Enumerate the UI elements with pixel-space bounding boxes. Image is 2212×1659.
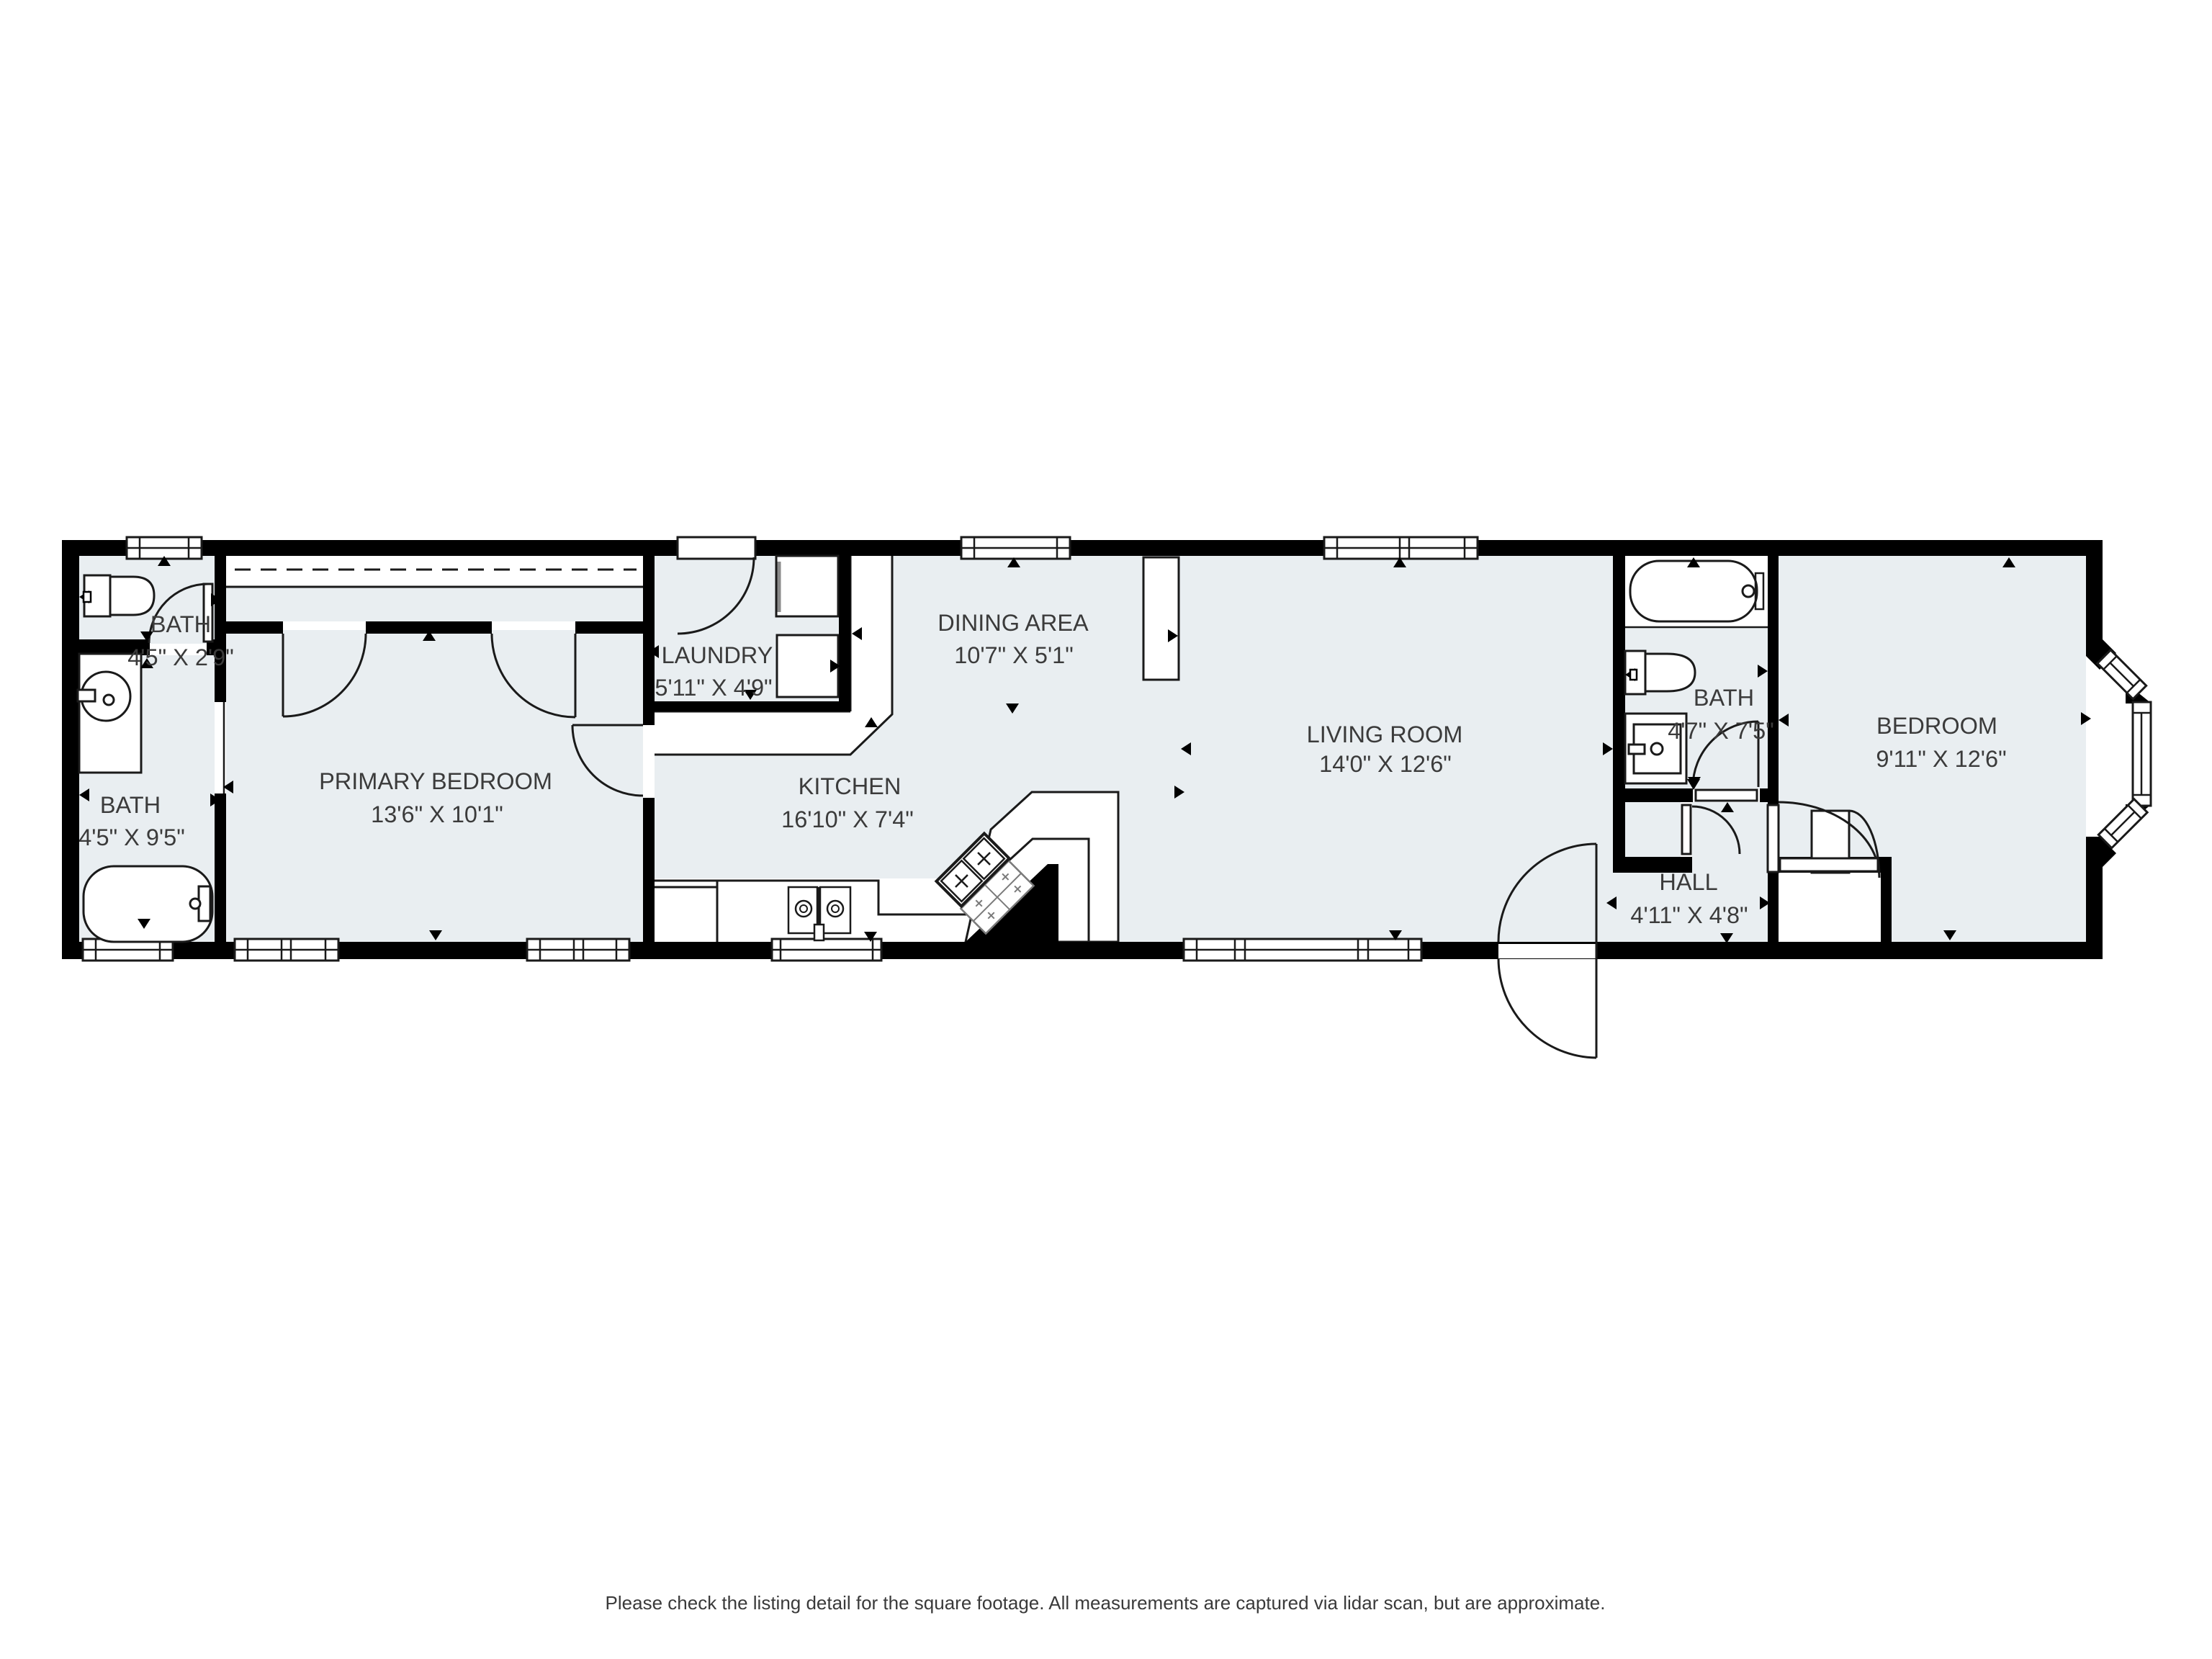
svg-text:HALL: HALL [1659, 869, 1717, 895]
svg-text:BATH: BATH [1694, 685, 1754, 711]
svg-text:16'10" X 7'4": 16'10" X 7'4" [781, 806, 914, 832]
svg-text:4'5" X 2'9": 4'5" X 2'9" [127, 644, 234, 670]
svg-text:DINING AREA: DINING AREA [938, 610, 1089, 636]
svg-text:LIVING ROOM: LIVING ROOM [1307, 721, 1463, 747]
svg-text:4'7" X 7'5": 4'7" X 7'5" [1668, 718, 1774, 744]
svg-text:BATH: BATH [100, 792, 161, 818]
svg-text:4'5" X 9'5": 4'5" X 9'5" [78, 824, 185, 850]
svg-text:5'11" X 4'9": 5'11" X 4'9" [655, 675, 772, 701]
svg-text:10'7" X 5'1": 10'7" X 5'1" [954, 642, 1074, 668]
svg-text:9'11" X 12'6": 9'11" X 12'6" [1876, 746, 2006, 772]
svg-text:BATH: BATH [150, 611, 211, 637]
svg-text:LAUNDRY: LAUNDRY [662, 642, 773, 668]
svg-text:4'11" X 4'8": 4'11" X 4'8" [1630, 902, 1748, 928]
svg-text:Please check the listing detai: Please check the listing detail for the … [606, 1592, 1606, 1614]
svg-text:KITCHEN: KITCHEN [799, 773, 902, 799]
svg-text:14'0" X 12'6": 14'0" X 12'6" [1319, 751, 1452, 777]
svg-text:BEDROOM: BEDROOM [1876, 713, 1997, 739]
svg-text:PRIMARY BEDROOM: PRIMARY BEDROOM [319, 768, 552, 794]
svg-text:13'6" X 10'1": 13'6" X 10'1" [371, 801, 503, 827]
